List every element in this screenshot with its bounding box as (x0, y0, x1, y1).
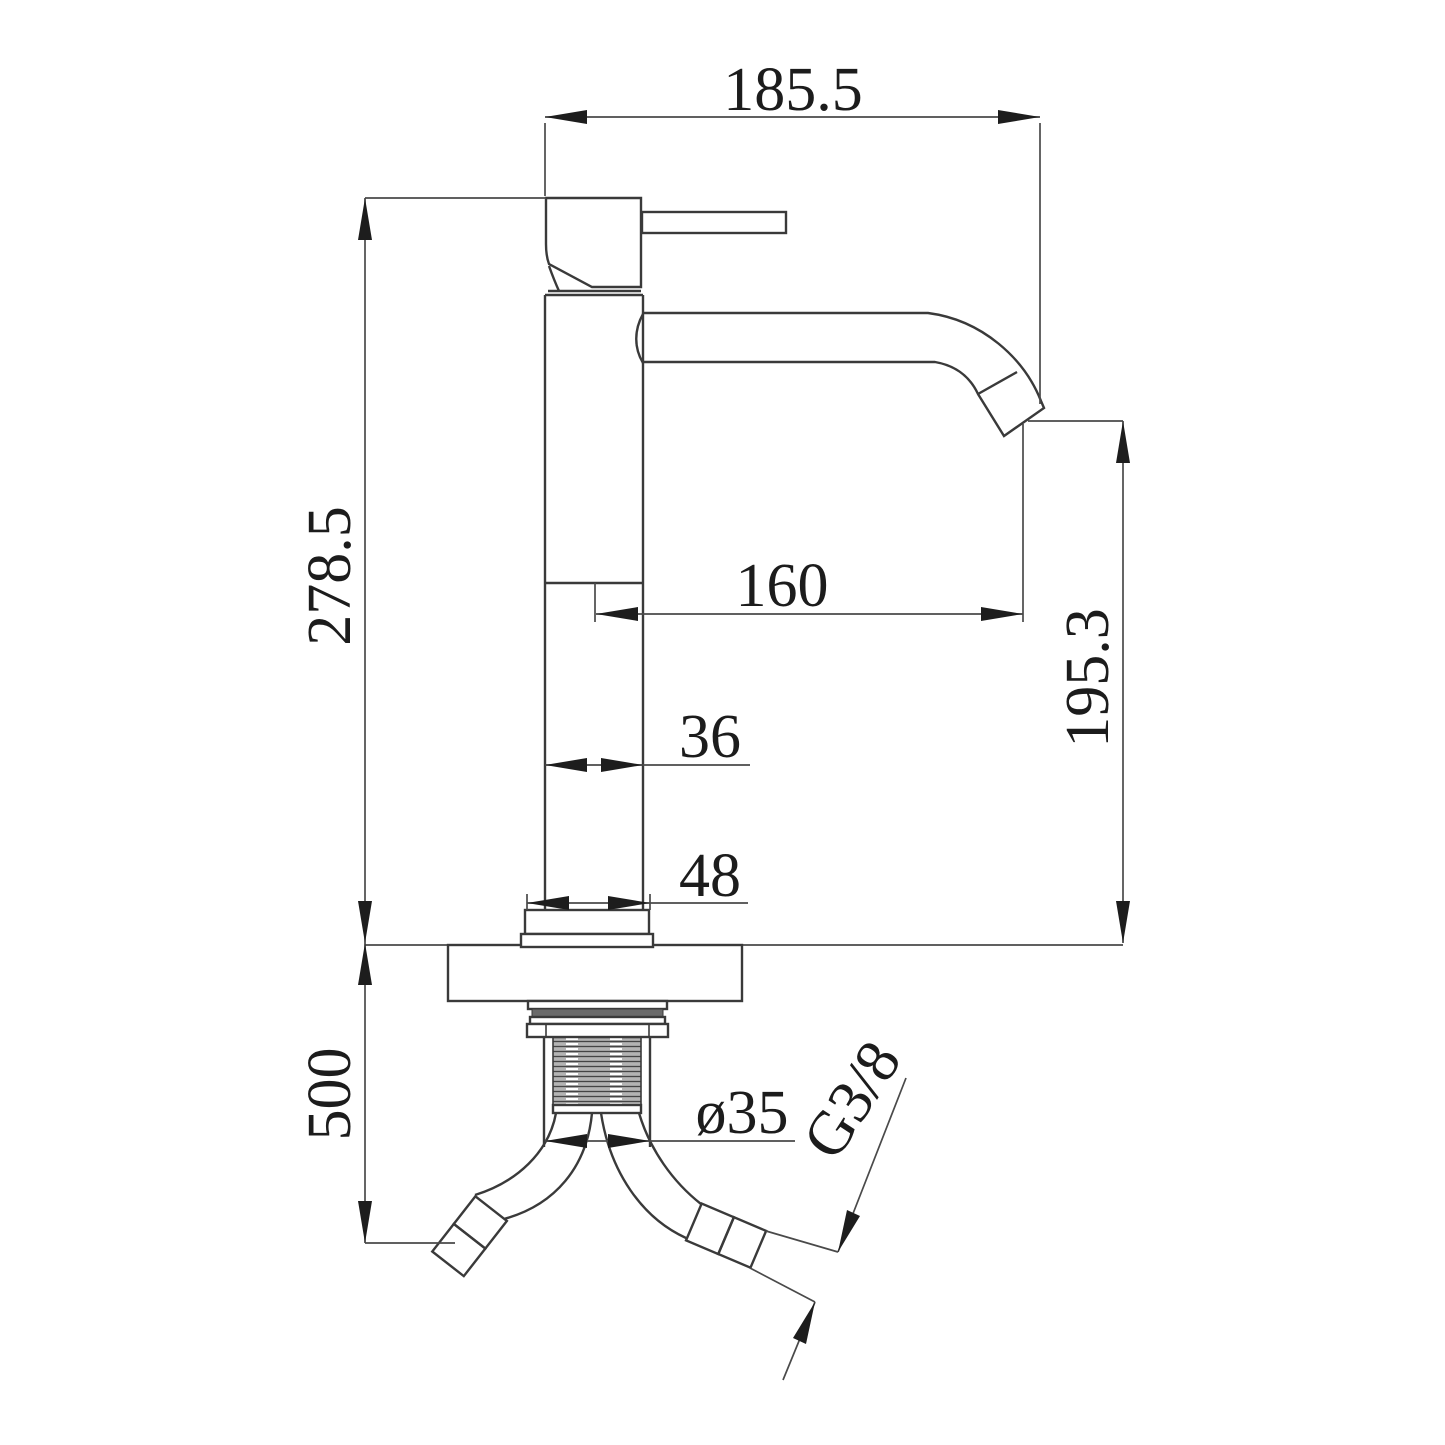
arrowhead (596, 607, 638, 621)
arrowhead (358, 943, 372, 985)
left-connector-nut (432, 1224, 485, 1276)
dimension-annotations (358, 110, 1130, 1380)
mixer-head (546, 198, 641, 287)
arrowhead (793, 1302, 815, 1344)
spout-outlet-face-line (978, 372, 1017, 394)
arrowhead (1116, 421, 1130, 463)
right-connector-ferrule (686, 1204, 734, 1254)
arrowhead (527, 896, 569, 910)
arrowhead (1116, 901, 1130, 943)
dim-hose-thread-label: G3/8 (790, 1030, 915, 1171)
base-plate (521, 934, 653, 947)
dim-outlet-height-label: 195.3 (1054, 608, 1122, 748)
dim-shank-diameter-label: ø35 (696, 1079, 789, 1147)
left-connector-ferrule (454, 1196, 507, 1248)
arrowhead (358, 1201, 372, 1243)
technical-drawing-page: 185.5 278.5 160 36 48 195.3 500 ø35 G3/8 (0, 0, 1445, 1445)
base-flange (525, 910, 649, 934)
dim-spout-reach-label: 160 (736, 552, 829, 620)
threaded-shank (553, 1037, 641, 1105)
rubber-gasket (532, 1009, 663, 1017)
right-hose-outer-edge (639, 1113, 701, 1204)
arrowhead (608, 1134, 650, 1148)
lever-handle (642, 212, 786, 233)
washer-plate (528, 1001, 667, 1009)
left-hose-inner-edge (504, 1113, 592, 1219)
spout-outline (643, 313, 1044, 436)
left-hose-connector (432, 1196, 507, 1276)
dim-body-width-label: 36 (679, 703, 741, 771)
dim-base-width-label: 48 (679, 842, 741, 910)
dim-overall-width-label: 185.5 (723, 56, 863, 124)
shank-end-cap (553, 1105, 641, 1113)
arrowhead (545, 1134, 587, 1148)
lock-nut (527, 1024, 668, 1037)
ext-line-thread-upper (766, 1231, 838, 1252)
mounting-hardware (527, 1001, 668, 1147)
ext-line-thread-lower (750, 1268, 815, 1302)
dim-hose-length-label: 500 (296, 1048, 364, 1141)
arrowhead (545, 110, 587, 124)
arrowhead (358, 901, 372, 943)
counter-slab-hatched (448, 945, 742, 1001)
arrowhead (545, 758, 587, 772)
arrowhead (838, 1210, 860, 1252)
arrowhead (601, 758, 643, 772)
right-connector-nut (718, 1217, 766, 1267)
right-hose-connector (686, 1204, 766, 1268)
dim-height-above-counter-label: 278.5 (296, 506, 364, 646)
arrowhead (358, 198, 372, 240)
faucet-technical-drawing: 185.5 278.5 160 36 48 195.3 500 ø35 G3/8 (0, 0, 1445, 1445)
arrowhead (998, 110, 1040, 124)
arrowhead (981, 607, 1023, 621)
counter-deck (365, 945, 1123, 1001)
